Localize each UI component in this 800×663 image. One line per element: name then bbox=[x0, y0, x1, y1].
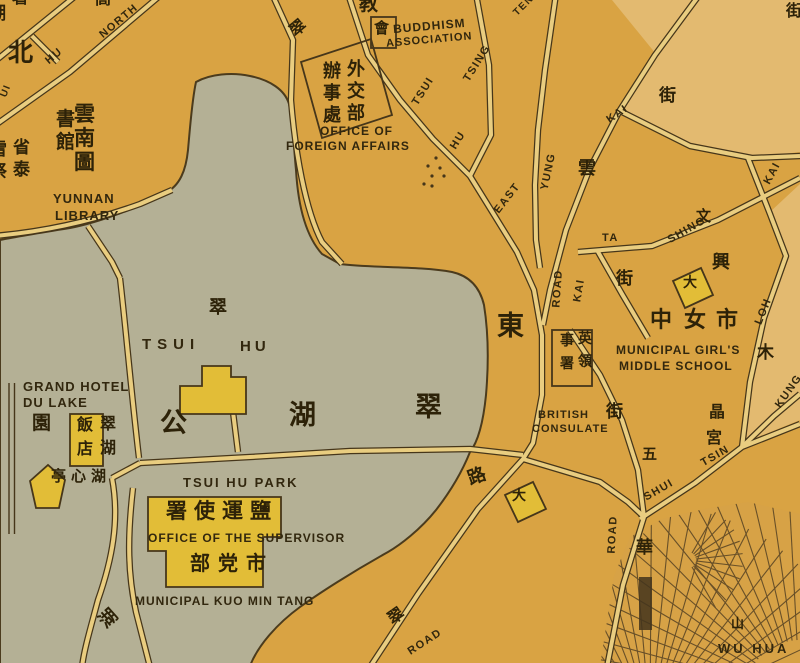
ui-road-fragment: UI bbox=[0, 83, 14, 99]
char-shu-2: 署 bbox=[560, 357, 574, 371]
char-cui-lake: 翠 bbox=[415, 394, 442, 421]
map-labels-layer: NORTHHUUITSUIHUTSINGTENKAIYUNGEASTROADKA… bbox=[0, 0, 800, 663]
char-sheng: 省 bbox=[13, 140, 30, 157]
tsui-hu-lake-label-1: TSUI bbox=[142, 337, 200, 352]
char-fan: 飯 bbox=[77, 417, 93, 433]
road-label-east: ROAD bbox=[551, 269, 565, 308]
british-consulate-label-2: CONSULATE bbox=[532, 424, 609, 435]
kai-street-label: KAI bbox=[605, 103, 631, 125]
char-clip-topleft: 湖 bbox=[0, 6, 6, 23]
tsui-road-label: TSUI bbox=[411, 75, 437, 107]
char-tu: 圖 bbox=[74, 152, 95, 173]
char-jing: 晶 bbox=[709, 404, 725, 420]
char-cui-north: 翠 bbox=[287, 17, 310, 40]
tsui-hu-park-label: TSUI HU PARK bbox=[183, 476, 298, 489]
wu-hua-label: WU HUA bbox=[718, 642, 789, 655]
road-label-bottom: ROAD bbox=[406, 627, 444, 657]
char-hu-lake: 湖 bbox=[289, 402, 316, 429]
char-yun-3: 運 bbox=[222, 501, 243, 522]
yunnan-library-label-1: YUNNAN bbox=[53, 192, 115, 205]
hu-road-label: HU bbox=[44, 46, 66, 67]
char-lu: 路 bbox=[465, 465, 488, 488]
char-bei: 北 bbox=[8, 40, 33, 65]
char-clip-right: 街 bbox=[786, 3, 800, 19]
char-dian: 店 bbox=[77, 441, 93, 457]
char-nv: 女 bbox=[684, 310, 706, 332]
char-clip-left-2: 祭 bbox=[0, 164, 7, 181]
char-nan: 南 bbox=[74, 128, 95, 149]
char-jiao-2: 交 bbox=[347, 83, 365, 101]
char-shi-2: 事 bbox=[560, 334, 574, 348]
char-dong: 東 bbox=[497, 313, 524, 340]
char-yuan: 園 bbox=[32, 414, 51, 433]
char-wu: 五 bbox=[642, 447, 657, 462]
char-jiao: 教 bbox=[359, 0, 378, 14]
ta-street-label: TA bbox=[602, 233, 619, 244]
char-ying: 英 bbox=[578, 332, 592, 346]
girls-school-label-2: MIDDLE SCHOOL bbox=[619, 360, 733, 372]
kung-street-label: KUNG bbox=[774, 373, 800, 411]
char-clip-left-1: 雷 bbox=[0, 142, 7, 159]
char-wen: 文 bbox=[696, 209, 711, 224]
british-consulate-label-1: BRITISH bbox=[538, 410, 589, 421]
ten-road-fragment: TEN bbox=[512, 0, 536, 18]
girls-school-label-1: MUNICIPAL GIRL'S bbox=[616, 344, 740, 356]
char-shi: 事 bbox=[323, 85, 341, 103]
kai-street-label-2: KAI bbox=[572, 278, 587, 303]
char-shi-city: 市 bbox=[716, 310, 738, 332]
tsin-street-label: TSIN bbox=[699, 444, 731, 469]
char-hu-hotel: 湖 bbox=[100, 440, 116, 456]
kuomintang-label: MUNICIPAL KUO MIN TANG bbox=[135, 595, 314, 607]
grand-hotel-label-2: DU LAKE bbox=[23, 396, 88, 409]
supervisor-office-label: OFFICE OF THE SUPERVISOR bbox=[148, 532, 345, 544]
char-yan: 鹽 bbox=[250, 501, 271, 522]
char-guan: 館 bbox=[56, 133, 75, 152]
char-ban: 辦 bbox=[323, 63, 341, 81]
char-hu-3: 湖 bbox=[91, 469, 106, 484]
tsui-hu-lake-label-2: HU bbox=[240, 339, 270, 354]
char-clip-top-2: 高 bbox=[95, 0, 111, 7]
char-dang: 党 bbox=[218, 553, 238, 573]
east-road-label: EAST bbox=[492, 181, 522, 216]
char-yun-2: 雲 bbox=[578, 160, 596, 178]
yunnan-library-label-2: LIBRARY bbox=[55, 209, 119, 222]
char-da-2: 大 bbox=[512, 489, 526, 503]
loh-street-label: LOH bbox=[754, 297, 775, 327]
char-shu: 書 bbox=[56, 110, 75, 129]
char-cui-hotel: 翠 bbox=[100, 416, 116, 432]
char-shi-3: 使 bbox=[194, 501, 215, 522]
shui-street-label: SHUI bbox=[642, 478, 675, 504]
kai-street-label-3: KAI bbox=[762, 161, 783, 187]
char-cui-road: 翠 bbox=[385, 605, 407, 627]
foreign-affairs-label-2: FOREIGN AFFAIRS bbox=[286, 140, 410, 152]
char-zhong: 中 bbox=[650, 310, 672, 332]
char-bu: 部 bbox=[347, 105, 365, 123]
yung-street-label: YUNG bbox=[540, 152, 559, 191]
char-ling: 領 bbox=[578, 355, 592, 369]
north-road-label: NORTH bbox=[98, 2, 141, 40]
char-ting: 亭 bbox=[51, 469, 66, 484]
char-xing: 興 bbox=[712, 254, 730, 272]
grand-hotel-label-1: GRAND HOTEL bbox=[23, 380, 129, 393]
foreign-affairs-label-1: OFFICE OF bbox=[320, 125, 393, 137]
char-jie-3: 街 bbox=[606, 404, 623, 421]
char-jie-2: 街 bbox=[616, 271, 633, 288]
char-jie-1: 街 bbox=[659, 88, 676, 105]
char-gong-lake: 公 bbox=[160, 410, 187, 437]
tsing-road-label: TSING bbox=[462, 43, 493, 84]
char-shu-3: 署 bbox=[166, 501, 187, 522]
historic-map: NORTHHUUITSUIHUTSINGTENKAIYUNGEASTROADKA… bbox=[0, 0, 800, 663]
char-shi-4: 市 bbox=[246, 553, 266, 573]
char-cui-small: 翠 bbox=[209, 299, 227, 317]
hu-road-label-2: HU bbox=[449, 130, 468, 152]
char-gong-palace: 宮 bbox=[706, 430, 722, 446]
road-label-south: ROAD bbox=[607, 515, 620, 554]
char-chu: 處 bbox=[323, 107, 341, 125]
char-tai: 泰 bbox=[13, 162, 30, 179]
char-yun: 雲 bbox=[74, 104, 95, 125]
char-hui: 會 bbox=[374, 21, 389, 36]
char-da-1: 大 bbox=[683, 276, 697, 290]
char-xin: 心 bbox=[71, 469, 86, 484]
char-clip-top-1: 署 bbox=[12, 0, 28, 6]
char-wai: 外 bbox=[347, 61, 365, 79]
char-hua: 華 bbox=[636, 540, 653, 557]
char-hu-causeway: 湖 bbox=[96, 606, 121, 631]
char-bu-2: 部 bbox=[190, 553, 210, 573]
char-mu: 木 bbox=[757, 345, 774, 362]
char-shan: 山 bbox=[731, 618, 744, 631]
